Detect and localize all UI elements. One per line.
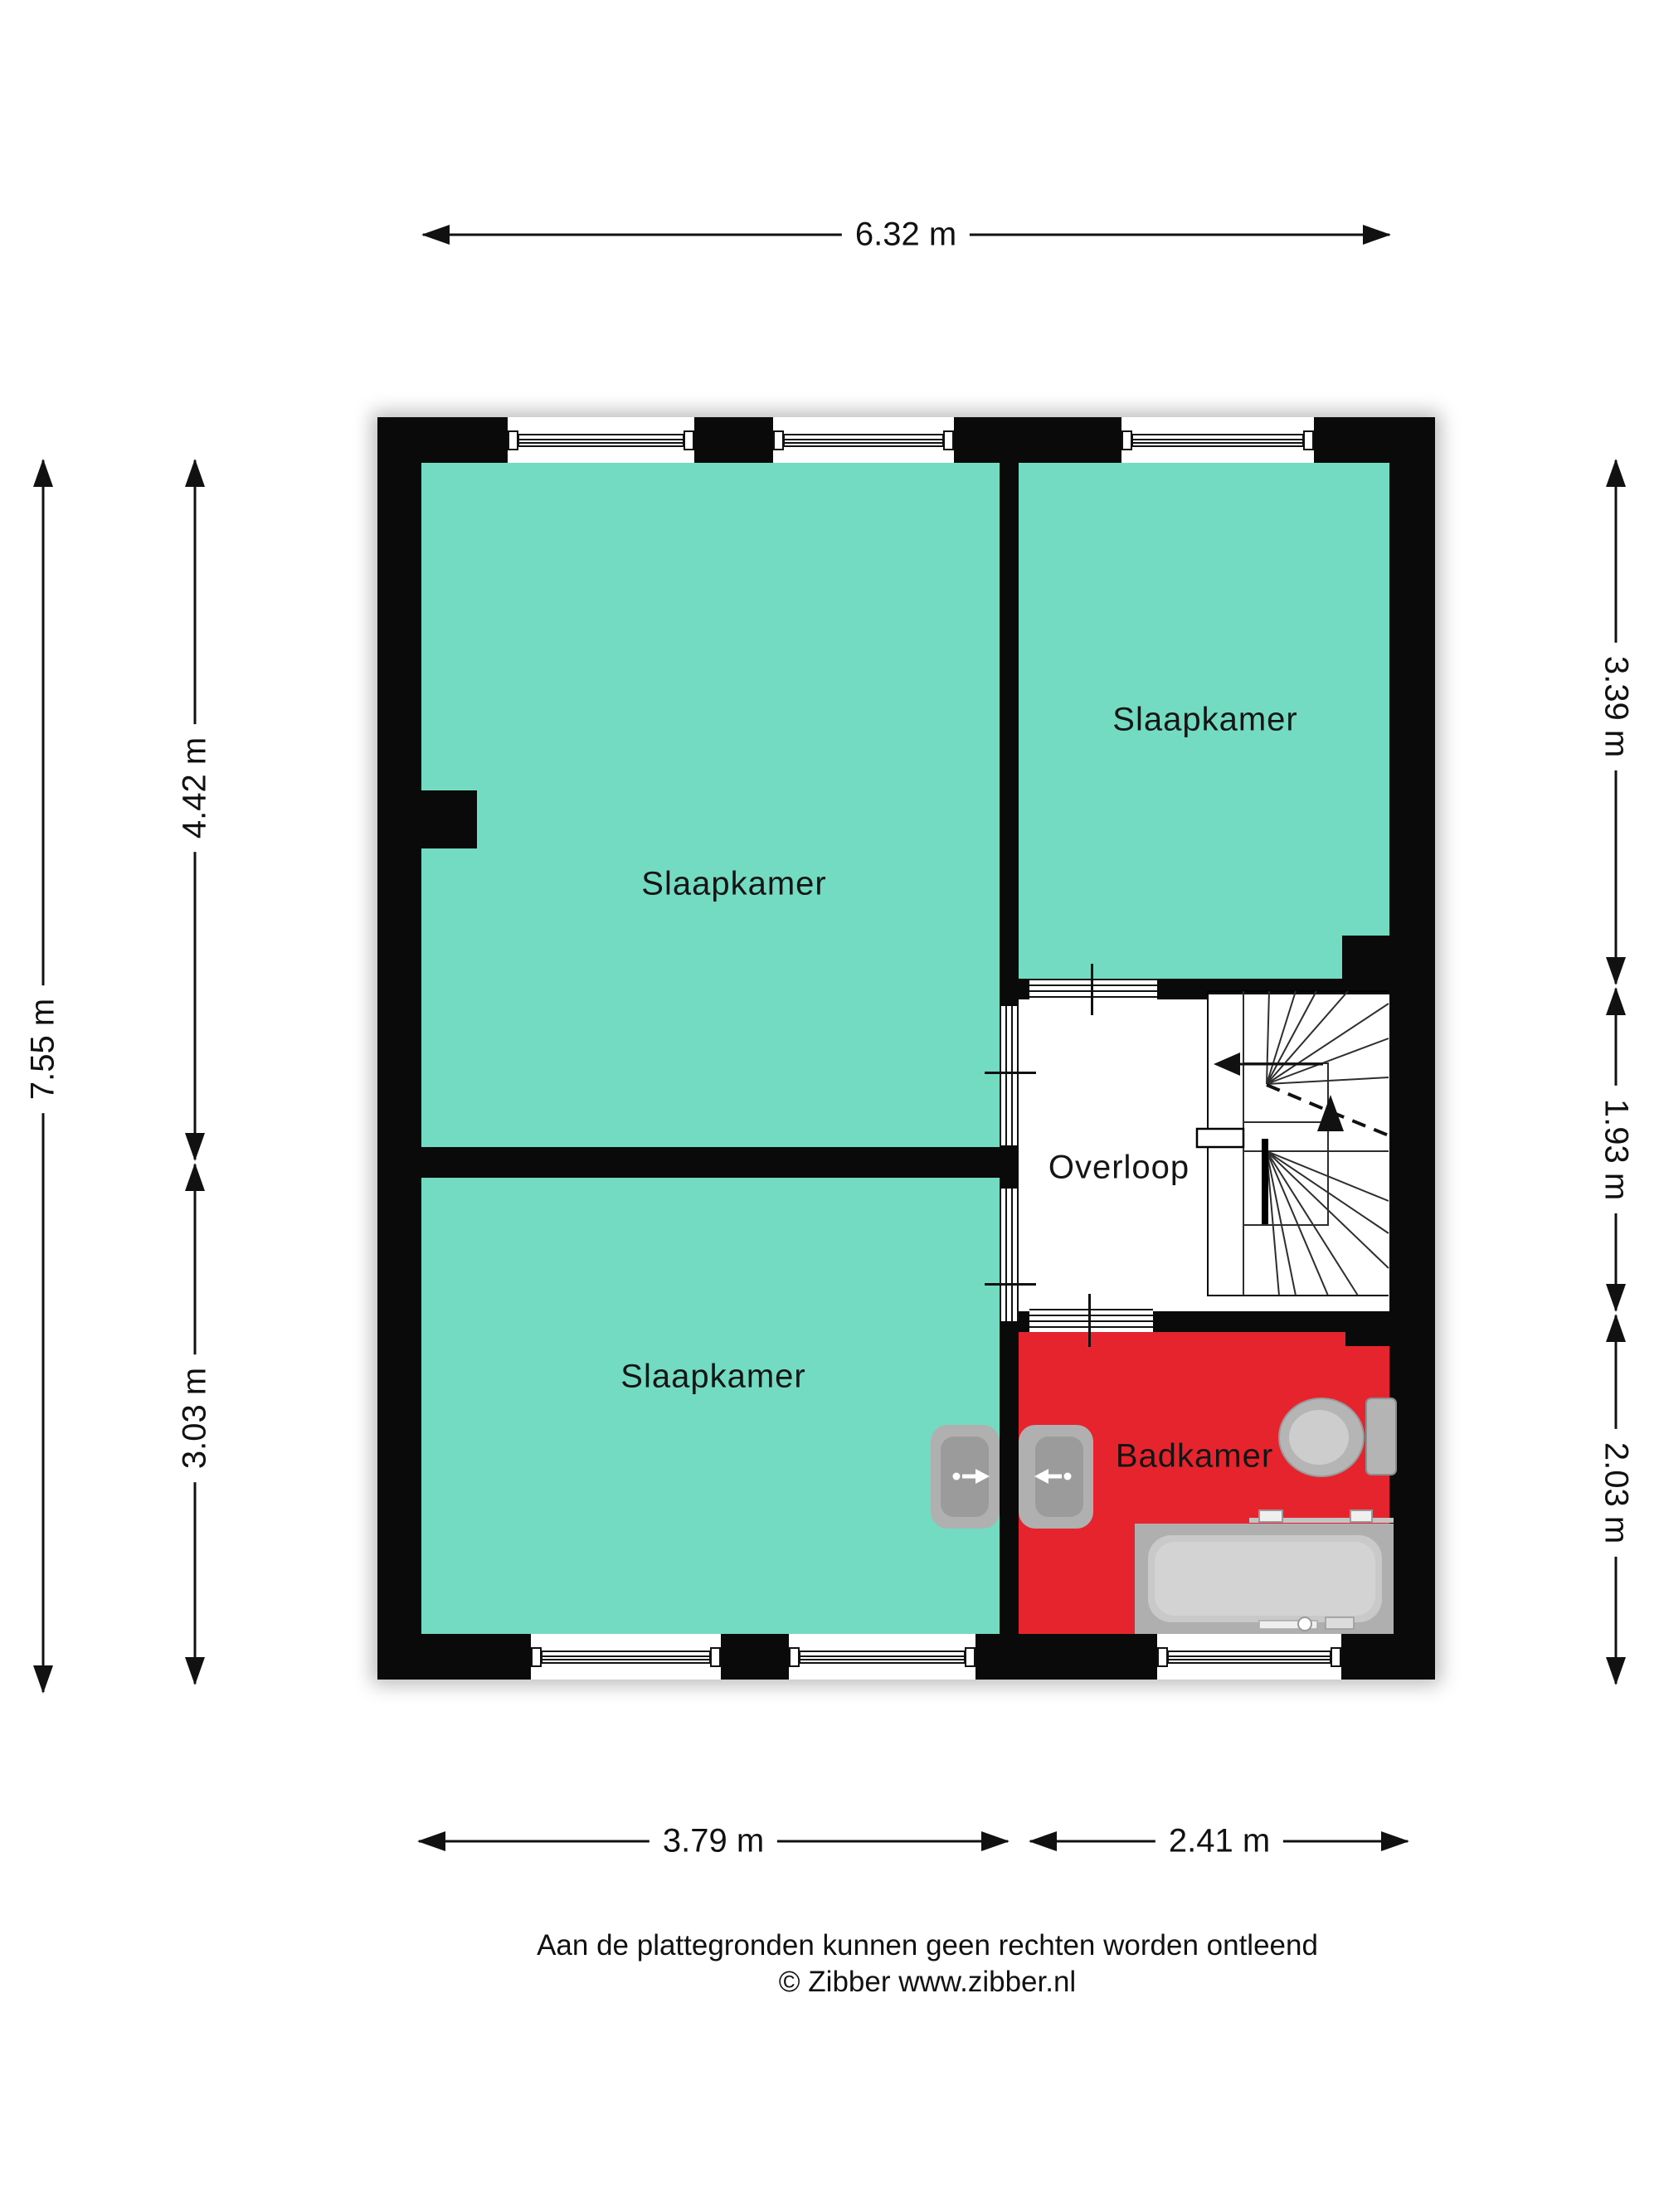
- dim-bottom-left: 3.79 m: [649, 1823, 777, 1860]
- room-label-bedroom-top-right: Slaapkamer: [1112, 702, 1297, 739]
- door-tick: [1091, 964, 1093, 1015]
- window-glass: [541, 1650, 711, 1664]
- room-label-bathroom: Badkamer: [1116, 1438, 1273, 1475]
- dim-right-middle: 1.93 m: [1598, 1086, 1635, 1213]
- door-tick: [985, 1072, 1036, 1074]
- window-icon: [773, 417, 954, 463]
- window-cap: [1331, 1647, 1341, 1667]
- footer-copyright: © Zibber www.zibber.nl: [779, 1966, 1076, 1999]
- window-cap: [965, 1647, 975, 1667]
- wall-notch-bathroom: [1345, 1324, 1389, 1346]
- window-glass: [518, 434, 684, 447]
- wall-pillar-notch: [421, 790, 477, 848]
- dim-right-lower: 2.03 m: [1598, 1429, 1635, 1557]
- window-cap: [508, 430, 518, 450]
- room-label-bedroom-bottom-left: Slaapkamer: [620, 1359, 805, 1396]
- window-icon: [1157, 1634, 1341, 1680]
- window-icon: [531, 1634, 721, 1680]
- door-tick: [1088, 1294, 1091, 1347]
- door-opening-bedroom-bottom-left: [1000, 1189, 1019, 1321]
- window-icon: [508, 417, 694, 463]
- door-opening-bedroom-large: [1000, 1006, 1019, 1145]
- door-tick: [985, 1283, 1036, 1286]
- dim-left-lower: 3.03 m: [177, 1354, 214, 1482]
- window-cap: [710, 1647, 721, 1667]
- window-glass: [783, 434, 944, 447]
- room-label-bedroom-large: Slaapkamer: [641, 866, 826, 903]
- room-bathroom: [1019, 1332, 1389, 1634]
- room-label-landing: Overloop: [1048, 1150, 1190, 1187]
- window-glass: [1167, 1650, 1331, 1664]
- window-cap: [789, 1647, 800, 1667]
- dim-left-upper: 4.42 m: [177, 724, 214, 852]
- window-cap: [684, 430, 694, 450]
- wall-notch-top-right-bedroom: [1342, 936, 1389, 979]
- window-glass: [1131, 434, 1304, 447]
- window-cap: [773, 430, 784, 450]
- window-cap: [1303, 430, 1314, 450]
- room-bedroom-bottom-left: [421, 1178, 1000, 1634]
- dim-left-total: 7.55 m: [25, 985, 62, 1113]
- room-bedroom-large: [421, 463, 1000, 1147]
- floorplan-walls: [377, 417, 1435, 1680]
- floorplan-page: Slaapkamer Slaapkamer Slaapkamer Overloo…: [0, 0, 1659, 2212]
- window-glass: [799, 1650, 966, 1664]
- window-cap: [943, 430, 954, 450]
- door-opening-bathroom: [1029, 1309, 1153, 1332]
- window-icon: [1121, 417, 1314, 463]
- window-icon: [789, 1634, 975, 1680]
- dim-top: 6.32 m: [842, 216, 970, 254]
- window-cap: [1157, 1647, 1168, 1667]
- dim-right-upper: 3.39 m: [1598, 643, 1635, 771]
- door-opening-top-right-bedroom: [1029, 979, 1157, 999]
- stairwell-area: [1207, 994, 1389, 1299]
- window-cap: [1121, 430, 1132, 450]
- footer-disclaimer: Aan de plattegronden kunnen geen rechten…: [537, 1929, 1318, 1962]
- window-cap: [531, 1647, 542, 1667]
- dim-bottom-right: 2.41 m: [1155, 1823, 1283, 1860]
